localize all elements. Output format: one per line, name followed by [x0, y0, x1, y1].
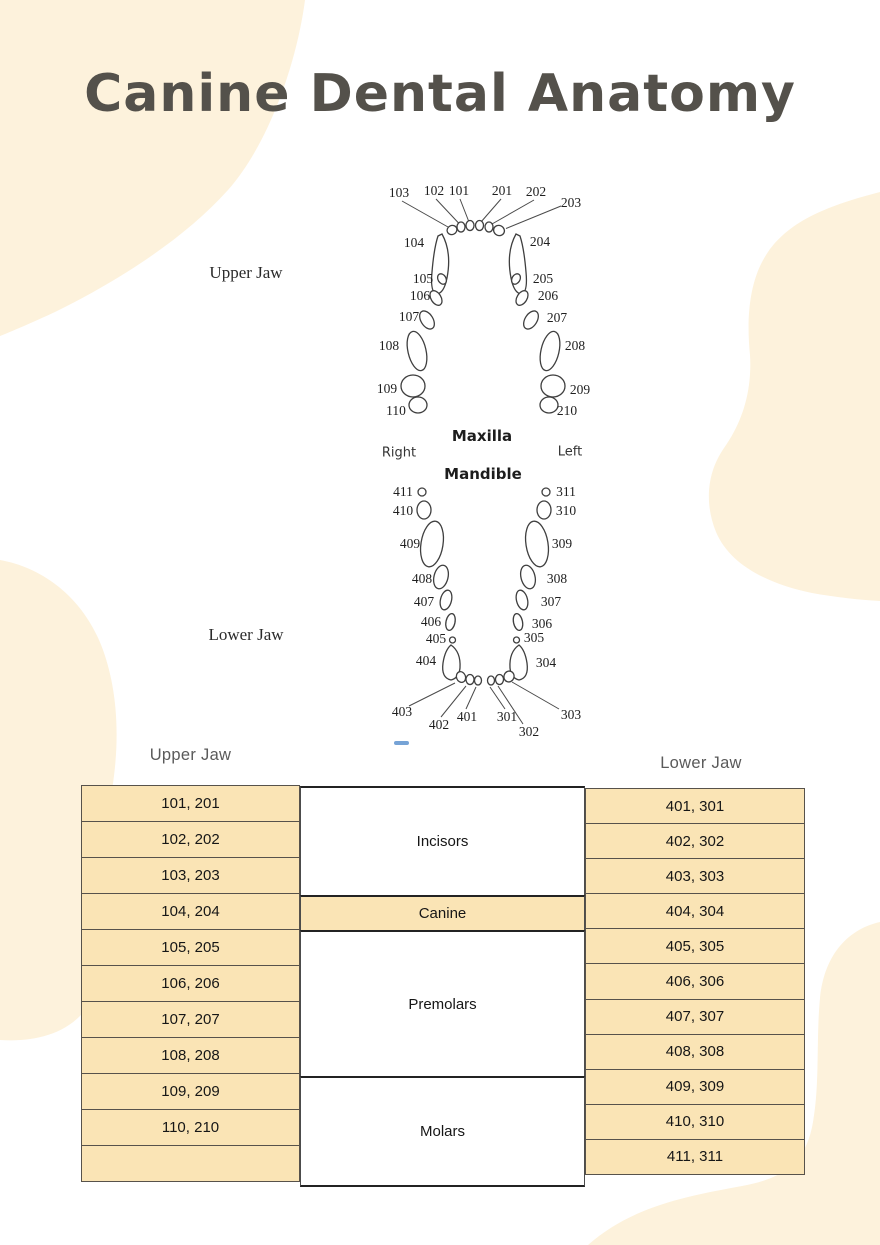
- lower-jaw-cell: 411, 311: [585, 1139, 805, 1175]
- lower-jaw-cell: 410, 310: [585, 1104, 805, 1140]
- lower-jaw-cell: 401, 301: [585, 788, 805, 824]
- upper-jaw-cell: 107, 207: [81, 1001, 300, 1038]
- upper-jaw-header: Upper Jaw: [81, 746, 300, 765]
- lower-jaw-column: 401, 301402, 302403, 303404, 304405, 305…: [585, 789, 805, 1175]
- upper-jaw-cell: 101, 201: [81, 785, 300, 822]
- upper-jaw-cell: 104, 204: [81, 893, 300, 930]
- tooth-category-cell-incisors: Incisors: [300, 786, 585, 897]
- upper-jaw-cell: 102, 202: [81, 821, 300, 858]
- upper-jaw-cell: 108, 208: [81, 1037, 300, 1074]
- upper-jaw-cell: 106, 206: [81, 965, 300, 1002]
- lower-jaw-cell: 404, 304: [585, 893, 805, 929]
- upper-jaw-cell: 103, 203: [81, 857, 300, 894]
- tooth-category-cell-molars: Molars: [300, 1076, 585, 1187]
- tooth-number-table: Upper Jaw Lower Jaw 101, 201102, 202103,…: [0, 0, 880, 1245]
- tooth-category-cell-premolars: Premolars: [300, 930, 585, 1078]
- lower-jaw-cell: 403, 303: [585, 858, 805, 894]
- lower-jaw-cell: 407, 307: [585, 999, 805, 1035]
- lower-jaw-cell: 405, 305: [585, 928, 805, 964]
- upper-jaw-cell: 109, 209: [81, 1073, 300, 1110]
- upper-jaw-column: 101, 201102, 202103, 203104, 204105, 205…: [81, 786, 300, 1182]
- lower-jaw-cell: 409, 309: [585, 1069, 805, 1105]
- upper-jaw-cell: [81, 1145, 300, 1182]
- upper-jaw-cell: 110, 210: [81, 1109, 300, 1146]
- lower-jaw-cell: 406, 306: [585, 963, 805, 999]
- lower-jaw-cell: 408, 308: [585, 1034, 805, 1070]
- lower-jaw-header: Lower Jaw: [585, 754, 817, 773]
- tooth-category-column: IncisorsCaninePremolarsMolars: [300, 786, 585, 1187]
- tooth-category-cell-canine: Canine: [300, 895, 585, 932]
- lower-jaw-cell: 402, 302: [585, 823, 805, 859]
- upper-jaw-cell: 105, 205: [81, 929, 300, 966]
